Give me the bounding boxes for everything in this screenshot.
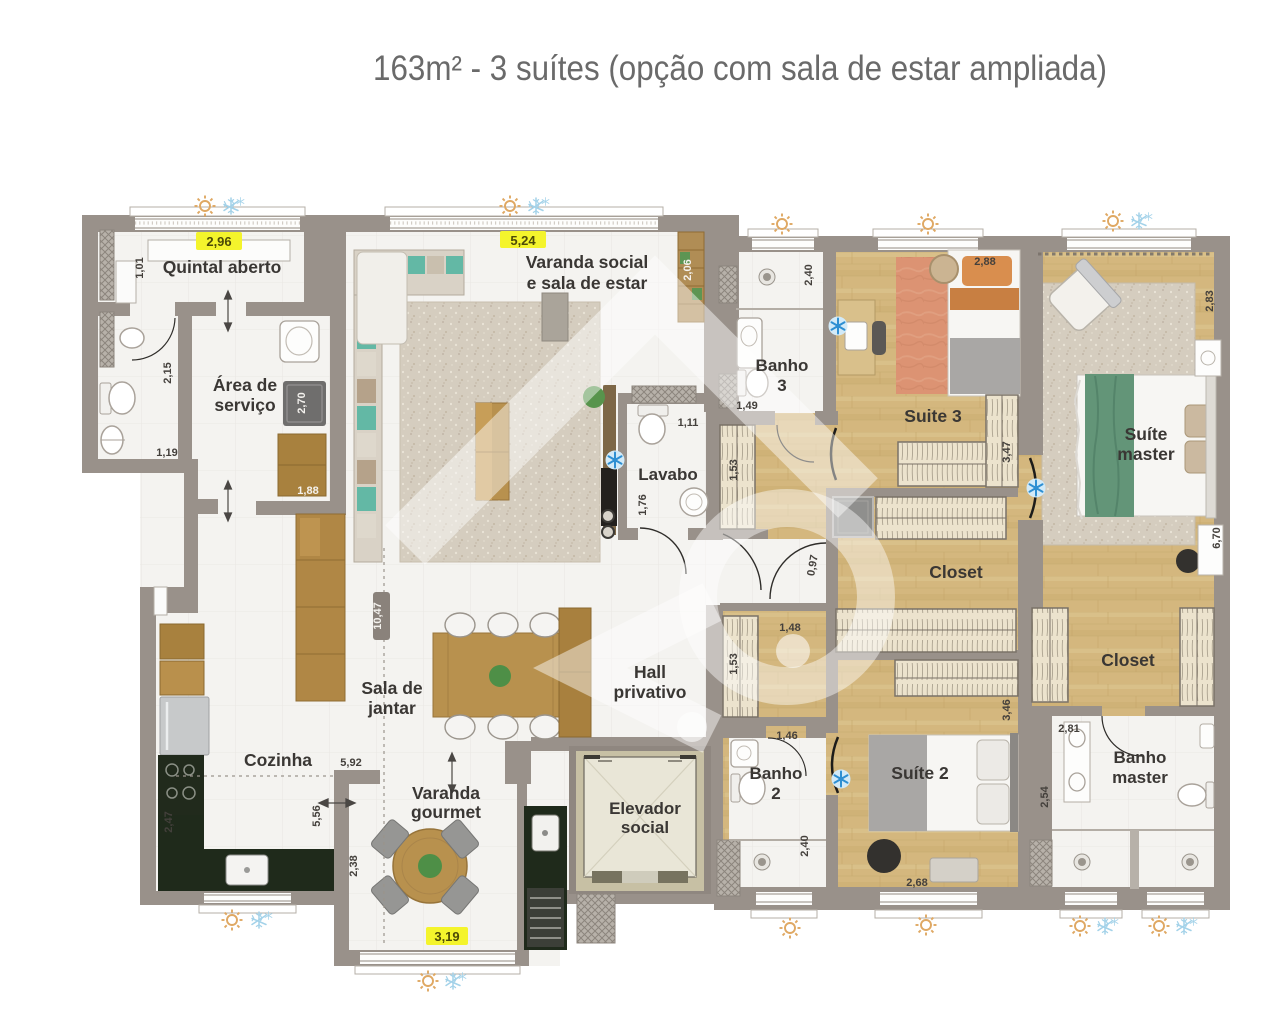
svg-text:3: 3	[777, 376, 786, 395]
svg-text:Suíte 2: Suíte 2	[891, 763, 949, 783]
svg-text:2,54: 2,54	[1039, 785, 1051, 807]
svg-text:1,46: 1,46	[776, 730, 797, 742]
svg-text:5,92: 5,92	[340, 757, 361, 769]
svg-text:Closet: Closet	[929, 562, 983, 582]
svg-text:Quintal aberto: Quintal aberto	[163, 257, 282, 277]
svg-text:social: social	[621, 818, 669, 837]
svg-text:5,56: 5,56	[311, 805, 323, 826]
svg-text:Sala de: Sala de	[361, 678, 423, 698]
svg-text:master: master	[1112, 768, 1168, 787]
svg-text:2,47: 2,47	[163, 811, 175, 832]
svg-text:2,96: 2,96	[206, 234, 231, 249]
svg-text:Closet: Closet	[1101, 650, 1155, 670]
svg-text:Lavabo: Lavabo	[638, 465, 698, 484]
svg-text:e sala de estar: e sala de estar	[527, 273, 648, 293]
svg-text:2,38: 2,38	[348, 855, 360, 876]
svg-text:Elevador: Elevador	[609, 799, 681, 818]
svg-text:Banho: Banho	[750, 764, 803, 783]
svg-text:1,19: 1,19	[156, 447, 177, 459]
svg-text:3,46: 3,46	[1001, 699, 1013, 720]
svg-text:Área de: Área de	[213, 374, 277, 395]
svg-text:1,76: 1,76	[637, 494, 649, 515]
svg-text:2,15: 2,15	[162, 362, 174, 383]
svg-text:Hall: Hall	[634, 662, 666, 682]
svg-text:1,53: 1,53	[728, 459, 740, 480]
svg-text:privativo: privativo	[614, 682, 687, 702]
svg-text:10,47: 10,47	[372, 602, 384, 630]
svg-text:1,48: 1,48	[779, 622, 800, 634]
svg-text:1,53: 1,53	[728, 653, 740, 674]
svg-text:Suíte: Suíte	[1125, 424, 1168, 444]
svg-text:1,11: 1,11	[678, 417, 699, 429]
svg-text:3,19: 3,19	[434, 929, 459, 944]
svg-text:2,40: 2,40	[799, 835, 811, 856]
svg-text:1,49: 1,49	[736, 400, 757, 412]
svg-text:Banho: Banho	[1114, 748, 1167, 767]
svg-text:Cozinha: Cozinha	[244, 750, 312, 770]
svg-text:3,47: 3,47	[1001, 441, 1013, 462]
svg-text:gourmet: gourmet	[411, 802, 481, 822]
svg-text:2,68: 2,68	[906, 877, 927, 889]
svg-text:Suite 3: Suite 3	[904, 406, 962, 426]
svg-text:2,81: 2,81	[1058, 723, 1079, 735]
svg-text:2,88: 2,88	[974, 256, 995, 268]
svg-text:6,70: 6,70	[1211, 527, 1223, 548]
svg-text:Varanda social: Varanda social	[526, 252, 649, 272]
svg-text:2,40: 2,40	[803, 264, 815, 285]
svg-text:jantar: jantar	[367, 698, 416, 718]
svg-text:master: master	[1117, 444, 1175, 464]
svg-text:2,70: 2,70	[296, 392, 308, 413]
svg-text:163m² - 3 suítes (opção com sa: 163m² - 3 suítes (opção com sala de esta…	[373, 49, 1107, 88]
svg-text:1,88: 1,88	[297, 485, 318, 497]
svg-text:Banho: Banho	[756, 356, 809, 375]
svg-text:2: 2	[771, 784, 780, 803]
svg-text:2,06: 2,06	[682, 259, 694, 280]
svg-text:2,83: 2,83	[1204, 290, 1216, 311]
svg-text:Varanda: Varanda	[412, 783, 480, 803]
svg-text:5,24: 5,24	[510, 233, 536, 248]
svg-text:serviço: serviço	[214, 395, 275, 415]
svg-text:1,01: 1,01	[134, 257, 146, 278]
